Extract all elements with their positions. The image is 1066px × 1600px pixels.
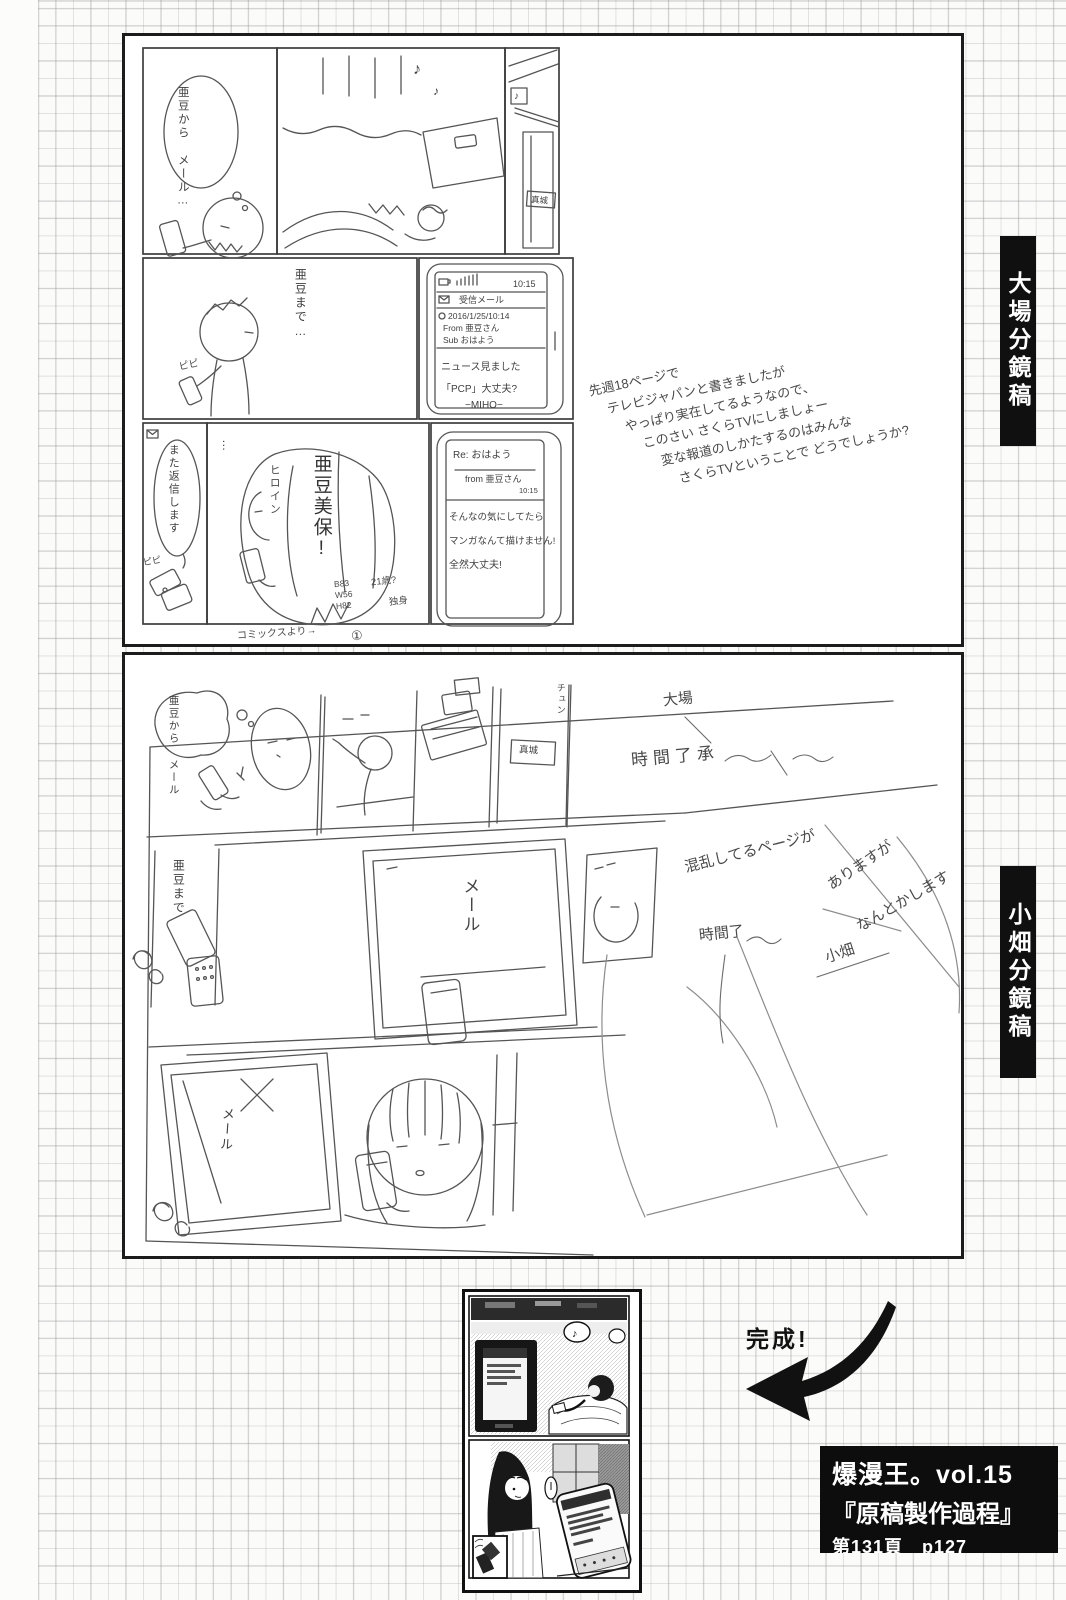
page2-rough-frames [146,685,937,1255]
music-note-icon: ♪ [413,60,421,79]
sketch-tv-shelf [421,678,569,825]
music-note-icon: ♪ [514,91,519,103]
finished-manga-panel: ♪ [462,1289,642,1593]
phone-reply-subject: Re: おはよう [453,450,511,462]
sketch-person-at-desk [333,715,413,815]
ohba-storyboard-page: 亜豆から メール… ♪ ♪ ♪ 真城 亜豆まで… ピピ 10:15 受信メール … [122,33,964,647]
speech-bubble-mail-from: 亜豆から メール… [175,86,189,198]
phone-mail-body: 「PCP」大丈夫? [441,384,517,396]
top-panel-bedroom [469,1296,629,1436]
phone-mail-title: 受信メール [459,295,504,306]
door-nameplate: 真城 [519,745,539,757]
music-note-icon: ♪ [433,84,439,98]
stat-hip: H82 [336,599,363,612]
handwriting-scribbles-bottom [720,937,889,1043]
bubble-line: 亜豆から [177,86,189,140]
phone-mail-date: 2016/1/25/10:14 [448,311,509,321]
phone-reply-from: from 亜豆さん [465,474,522,485]
section-label-ohba-storyboard: 大場分鏡稿 [1000,236,1036,446]
phone-mail-signature: −MIHO− [465,400,503,412]
bubble-line: メール [168,759,180,797]
sketch-girl-and-mail-page [153,1053,517,1236]
panel4-boy-walking [178,298,258,416]
phone-reply-body: マンガなんて描けません! [449,536,555,547]
mail-text-big: メール [459,877,479,981]
bubble-line: メール… [177,154,189,209]
volume-title: 爆漫王。vol.15 [832,1455,1046,1491]
phone-mail-subject: Sub おはよう [443,335,495,345]
panel3-hallway [509,50,559,248]
phone-reply-body: 全然大丈夫! [449,560,502,572]
finished-art: ♪ [465,1292,633,1584]
sketch-big-mail-page [149,839,657,1055]
page-reference: 第131頁 p127 [832,1533,1046,1559]
panel2-bedroom-scene [283,56,504,248]
volume-info-box: 爆漫王。vol.15 『原稿製作過程』 第131頁 p127 [820,1446,1058,1553]
door-nameplate: 真城 [531,194,549,205]
phone-mail-from: From 亜豆さん [443,323,499,333]
caption-mail-to: 亜豆まで… [293,268,307,388]
phone-clock: 10:15 [513,279,536,290]
character-name-label: 亜豆美保! [309,454,332,626]
phone-reply-time: 10:15 [519,486,538,495]
music-note-icon: ♪ [572,1328,578,1340]
sfx-chirp: チュン [555,683,566,735]
section-label-obata-storyboard: 小畑分鏡稿 [1000,866,1036,1078]
obata-storyboard-page: 亜豆から メール 真城 チュン 大場 時間了承 亜豆まで メール メール 混乱し… [122,652,964,1259]
bottom-panel-azuki-desk [469,1440,632,1580]
chapter-title: 『原稿製作過程』 [832,1494,1046,1529]
scanned-book-page: 亜豆から メール… ♪ ♪ ♪ 真城 亜豆まで… ピピ 10:15 受信メール … [0,0,1066,1600]
character-stats: B83 W56 H82 [334,577,363,612]
left-page-margin [0,0,38,1600]
phone-mail-body: ニュース見ました [441,362,521,374]
page-number-circle: ① [351,628,363,644]
ellipsis-marks: … [220,439,234,451]
phone-reply-body: そんなの気にしてたら [449,512,544,523]
stat-single: 独身 [388,595,408,608]
caption-mail-to: 亜豆まで [171,859,185,981]
speech-bubble-mail-from: 亜豆から メール [167,695,180,771]
character-role-label: ヒロイン [267,464,280,534]
bubble-line: 亜豆から [168,695,180,745]
speech-bubble-reply: また返信します [166,444,179,560]
completed-arrow [730,1295,910,1435]
author-note-name: 大場 [662,689,694,710]
